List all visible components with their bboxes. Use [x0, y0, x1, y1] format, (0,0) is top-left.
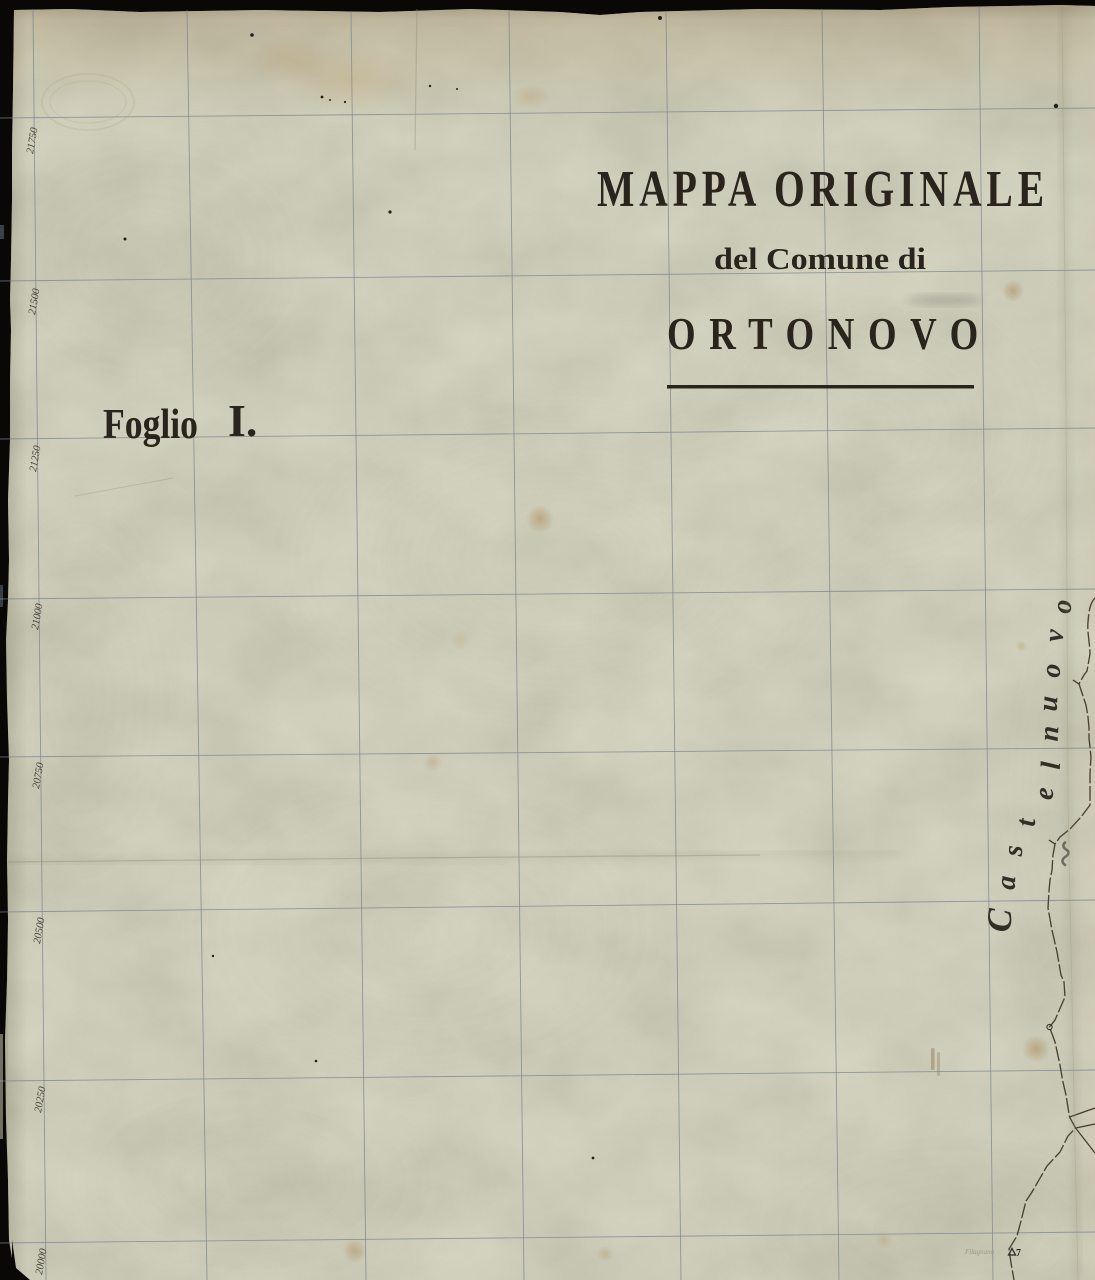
svg-text:del Comune di: del Comune di: [714, 241, 926, 276]
svg-text:n: n: [1034, 725, 1066, 742]
svg-text:s: s: [998, 844, 1030, 858]
svg-text:C: C: [979, 907, 1019, 933]
svg-text:o: o: [1036, 663, 1068, 679]
svg-text:I.: I.: [228, 395, 257, 446]
svg-text:Foglio: Foglio: [103, 402, 198, 448]
svg-text:MAPPA ORIGINALE: MAPPA ORIGINALE: [597, 160, 1049, 217]
svg-text:ORTONOVO: ORTONOVO: [667, 309, 992, 360]
svg-text:e: e: [1029, 787, 1061, 801]
svg-text:Filagnana: Filagnana: [964, 1248, 995, 1256]
svg-text:7: 7: [1016, 1248, 1021, 1259]
svg-text:o: o: [1047, 599, 1079, 615]
svg-text:u: u: [1033, 695, 1065, 712]
svg-text:a: a: [991, 875, 1023, 891]
